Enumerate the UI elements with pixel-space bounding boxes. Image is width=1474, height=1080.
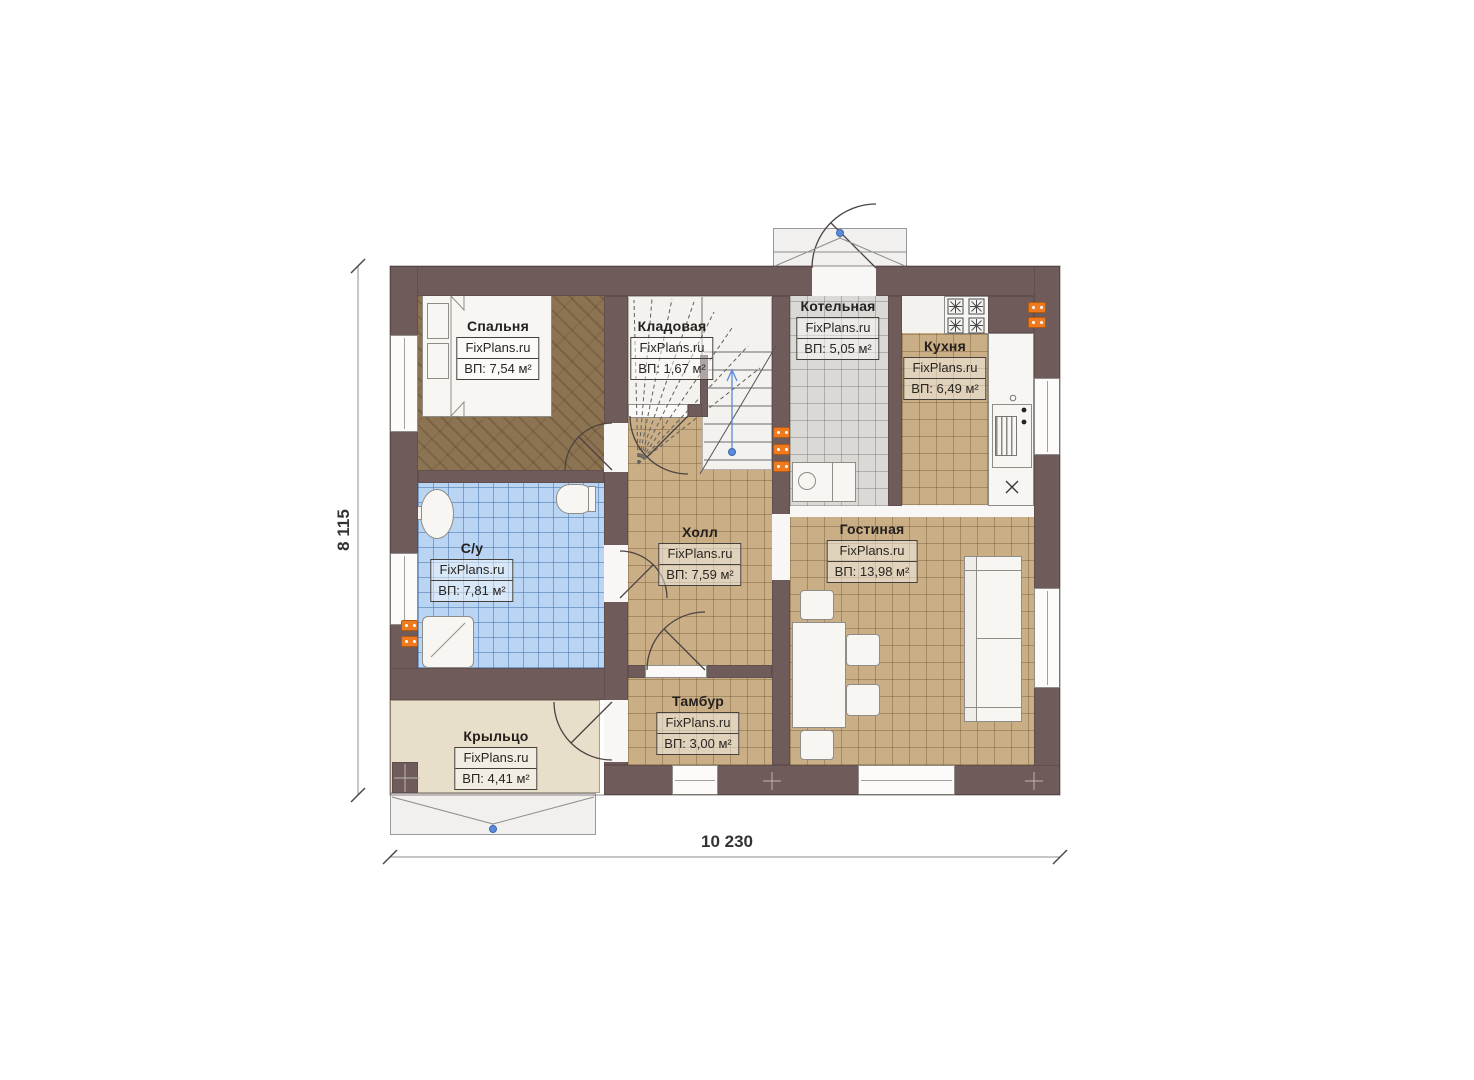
boiler-divider [832,463,833,501]
room-name: Тамбур [656,693,739,709]
dimension-height: 8 115 [334,498,354,562]
watermark-text: FixPlans.ru [455,748,536,768]
chair [846,684,880,716]
room-info-box: FixPlans.ru ВП: 6,49 м² [903,357,986,400]
sofa-armrest [965,570,1021,571]
canopy-top-dot [836,229,844,237]
watermark-text: FixPlans.ru [657,713,738,733]
window-kitchen-right [1034,378,1060,455]
room-name: Гостиная [827,521,918,537]
doorway-bathroom [604,545,628,602]
opening-hall-living [772,514,790,580]
watermark-text: FixPlans.ru [431,560,512,580]
room-label-kitchen: Кухня FixPlans.ru ВП: 6,49 м² [903,338,986,400]
watermark-text: FixPlans.ru [904,358,985,378]
room-area: ВП: 6,49 м² [904,378,985,399]
washbasin [420,489,454,539]
toilet-tank [588,486,596,512]
wall-interior-v1 [604,296,628,765]
room-name: Котельная [796,298,879,314]
room-info-box: FixPlans.ru ВП: 7,54 м² [456,337,539,380]
pillow [427,303,449,339]
room-info-box: FixPlans.ru ВП: 3,00 м² [656,712,739,755]
room-area: ВП: 7,59 м² [659,564,740,585]
room-area: ВП: 5,05 м² [797,338,878,359]
threshold-storage [628,404,688,418]
canopy-bottom-dot [489,825,497,833]
room-area: ВП: 1,67 м² [631,358,712,379]
pillow [427,343,449,379]
room-info-box: FixPlans.ru ВП: 1,67 м² [630,337,713,380]
wall-boiler-kitchen [888,296,902,506]
watermark-text: FixPlans.ru [828,541,917,561]
radiator [773,461,790,472]
wall-right [1034,266,1060,795]
room-area: ВП: 7,81 м² [431,580,512,601]
room-label-living: Гостиная FixPlans.ru ВП: 13,98 м² [827,521,918,583]
room-info-box: FixPlans.ru ВП: 13,98 м² [827,540,918,583]
room-label-vestibule: Тамбур FixPlans.ru ВП: 3,00 м² [656,693,739,755]
radiator [1028,302,1046,313]
dimension-width: 10 230 [685,832,769,852]
room-name: С/у [430,540,513,556]
room-label-bedroom: Спальня FixPlans.ru ВП: 7,54 м² [456,318,539,380]
radiator [401,620,418,631]
chair [800,730,834,760]
chair [800,590,834,620]
room-label-storage: Кладовая FixPlans.ru ВП: 1,67 м² [630,318,713,380]
sofa-backrest [965,557,977,721]
watermark-text: FixPlans.ru [631,338,712,358]
stove [944,296,990,334]
radiator [773,427,790,438]
window-living-bottom [858,765,955,795]
sink-drainer [995,416,1017,456]
radiator [1028,317,1046,328]
window-bathroom-left [390,553,418,625]
wall-top [390,266,1060,296]
room-info-box: FixPlans.ru ВП: 5,05 м² [796,317,879,360]
radiator [773,444,790,455]
room-info-box: FixPlans.ru ВП: 4,41 м² [454,747,537,790]
room-name: Спальня [456,318,539,334]
room-info-box: FixPlans.ru ВП: 7,59 м² [658,543,741,586]
wall-bed-bath [418,470,604,483]
dining-table [792,622,846,728]
doorway-porch [604,700,628,762]
floor-plan-page: Спальня FixPlans.ru ВП: 7,54 м² Кладовая… [0,0,1474,1080]
watermark-text: FixPlans.ru [797,318,878,338]
window-vestibule-bottom [672,765,718,795]
sofa-armrest [965,707,1021,708]
wall-bathroom-south [390,668,606,700]
sofa-seat-divider [977,638,1021,639]
room-area: ВП: 4,41 м² [455,768,536,789]
watermark-text: FixPlans.ru [659,544,740,564]
shower-tray [422,616,474,668]
room-label-bathroom: С/у FixPlans.ru ВП: 7,81 м² [430,540,513,602]
threshold-vestibule [645,665,707,678]
porch-pillar [392,762,418,793]
doorway-bedroom [604,423,628,472]
passage-living-top [790,506,1034,517]
room-label-porch: Крыльцо FixPlans.ru ВП: 4,41 м² [454,728,537,790]
room-info-box: FixPlans.ru ВП: 7,81 м² [430,559,513,602]
room-name: Холл [658,524,741,540]
room-area: ВП: 13,98 м² [828,561,917,582]
chair [846,634,880,666]
stair-walkline-dot [728,448,736,456]
room-name: Крыльцо [454,728,537,744]
wall-left [390,266,418,700]
window-living-right [1034,588,1060,688]
room-name: Кладовая [630,318,713,334]
room-area: ВП: 7,54 м² [457,358,538,379]
boiler-burner-circle [798,472,816,490]
wall-top-kitchen-block [988,296,1034,333]
room-area: ВП: 3,00 м² [657,733,738,754]
window-bedroom-left [390,335,418,432]
room-name: Кухня [903,338,986,354]
radiator [401,636,418,647]
room-label-hall: Холл FixPlans.ru ВП: 7,59 м² [658,524,741,586]
watermark-text: FixPlans.ru [457,338,538,358]
wall-storage-stub [688,404,702,417]
doorway-boiler-exterior [812,266,876,296]
room-label-boiler: Котельная FixPlans.ru ВП: 5,05 м² [796,298,879,360]
